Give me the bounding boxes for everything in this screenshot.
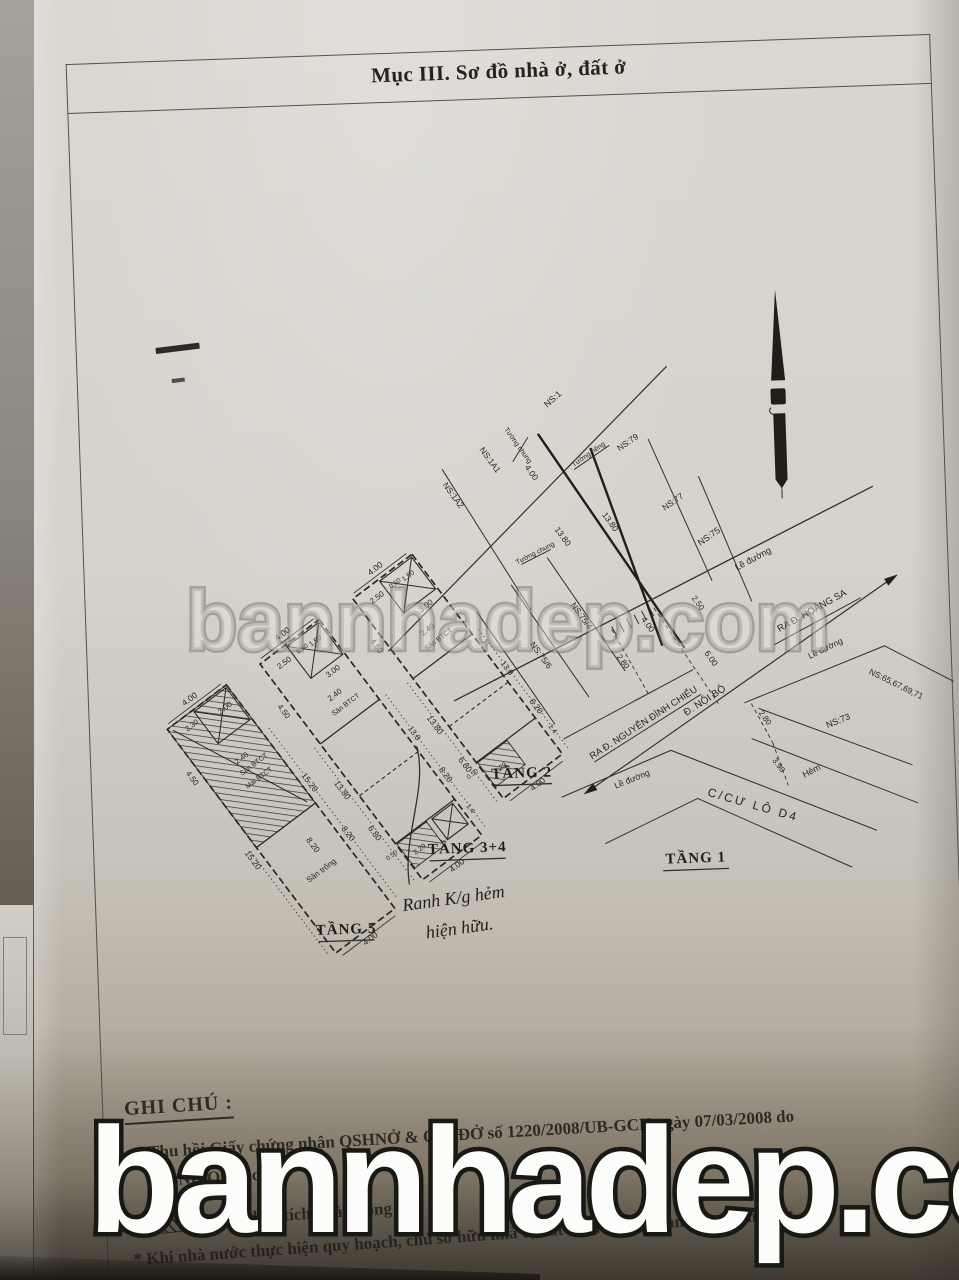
t34-dim-b: 0.50 — [295, 642, 310, 655]
t34-dim-a: 2.50 — [275, 654, 293, 671]
street-cu-lo-d4: C/CƯ LÔ D4 — [706, 784, 800, 824]
t2-dim-f: 2.40 — [419, 621, 437, 638]
t34-len-r: 13.8 — [406, 724, 423, 742]
t34-dim-f: 2.40 — [326, 686, 344, 703]
t2-len-r: 13.8 — [499, 659, 516, 677]
dim-4m: 4.00 — [523, 463, 541, 482]
lot-ns75-6: NS:75/6 — [528, 640, 554, 671]
t5-len-l: 15.20 — [243, 848, 264, 871]
floor-label-tang34: TẦNG 3+4 — [428, 838, 507, 858]
t5-dim-g: 8.20 — [339, 824, 357, 843]
lot-ns1a2: NS:1A2 — [441, 480, 466, 510]
t2-dim-b: 0.50 — [388, 577, 403, 590]
t2-dim-a: 2.50 — [368, 589, 386, 606]
t34-dim-g: 8.20 — [437, 765, 455, 784]
t34-dim-i: 0.50 — [385, 849, 400, 862]
t2-dim-d: 3.00 — [417, 597, 435, 614]
lot-ns1a1: NS:1A1 — [478, 445, 503, 475]
t34-dim-w: 4.00 — [273, 625, 292, 643]
arrow-to-hoang-sa — [884, 574, 898, 585]
floor-label-tang1: TẦNG 1 — [665, 849, 726, 868]
street-ra-hoang-sa: RA Đ. HOÀNG SA — [775, 587, 849, 635]
dim-250: 2.50 — [690, 594, 707, 612]
lot-ns73: NS:73 — [825, 711, 852, 730]
handwritten-note-line1: Ranh K/g hẻm — [400, 881, 506, 915]
hatched-area-legend-icon — [143, 1202, 199, 1235]
document-content: Mục III. Sơ đồ nhà ở, đất ở — [0, 0, 959, 1280]
t2-dim-g: 8.20 — [527, 696, 545, 715]
north-arrow-icon — [765, 289, 789, 498]
t5-dim-h: 8.20 — [304, 835, 322, 854]
floor-label-tang2: TẦNG 2 — [491, 764, 552, 783]
t34-dim-e: 4.50 — [276, 702, 293, 720]
redaction-marks — [155, 343, 201, 384]
upper-lot-fan: NS:1 NS:1A2 NS:1A1 Tường chung 4.00 Tườn… — [379, 364, 754, 659]
t34-dim-d: 3.00 — [324, 663, 342, 680]
dim-front-4m: 4.00 — [639, 615, 657, 634]
wall-tuong-chung-2: Tường chung — [515, 541, 556, 567]
wall-tuong-rieng: Tường riêng — [571, 441, 607, 469]
handwritten-note-line2: hiện hữu. — [424, 913, 494, 942]
site-and-floor-plans-drawing: NS:1 NS:1A2 NS:1A1 Tường chung 4.00 Tườn… — [0, 0, 959, 1280]
wall-tuong-chung: Tường chung — [502, 427, 533, 465]
lot-ns75-4: NS:75/4 — [569, 600, 595, 631]
t2-dim-e: 4.50 — [368, 637, 385, 655]
t2-dim-w: 4.00 — [365, 559, 384, 577]
t5-open-yard: Sân trống — [305, 857, 338, 885]
dim-390: 3.90 — [770, 756, 787, 774]
street-le-duong-2: Lề đường — [806, 635, 844, 660]
lot-ns79: NS:79 — [615, 431, 640, 453]
internal-road: RA Đ. NGUYỄN ĐÌNH CHIỂU Đ. NỘI BỘ RA Đ. … — [558, 574, 905, 795]
lot-ns1: NS:1 — [542, 389, 564, 410]
t5-dim-e: 4.50 — [184, 769, 201, 787]
street-ra-nguyen-dinh-chieu: RA Đ. NGUYỄN ĐÌNH CHIỂU — [587, 683, 699, 762]
floor-label-tang5: TẦNG 5 — [315, 920, 376, 939]
scanned-document-photo: Mục III. Sơ đồ nhà ở, đất ở — [0, 0, 959, 1280]
lot-ns-group: NS:65,67,69,71 — [867, 666, 925, 701]
t5-dim-w: 4.00 — [180, 690, 199, 708]
street-le-duong-1: Lề đường — [733, 545, 773, 572]
dim-1380a: 13.80 — [553, 525, 574, 548]
lot-ns75: NS:75 — [696, 525, 722, 548]
corner-lots: Lề đường NS:65,67,69,71 NS:73 2.80 3.90 … — [556, 631, 959, 877]
dim-600: 6.00 — [702, 649, 720, 668]
